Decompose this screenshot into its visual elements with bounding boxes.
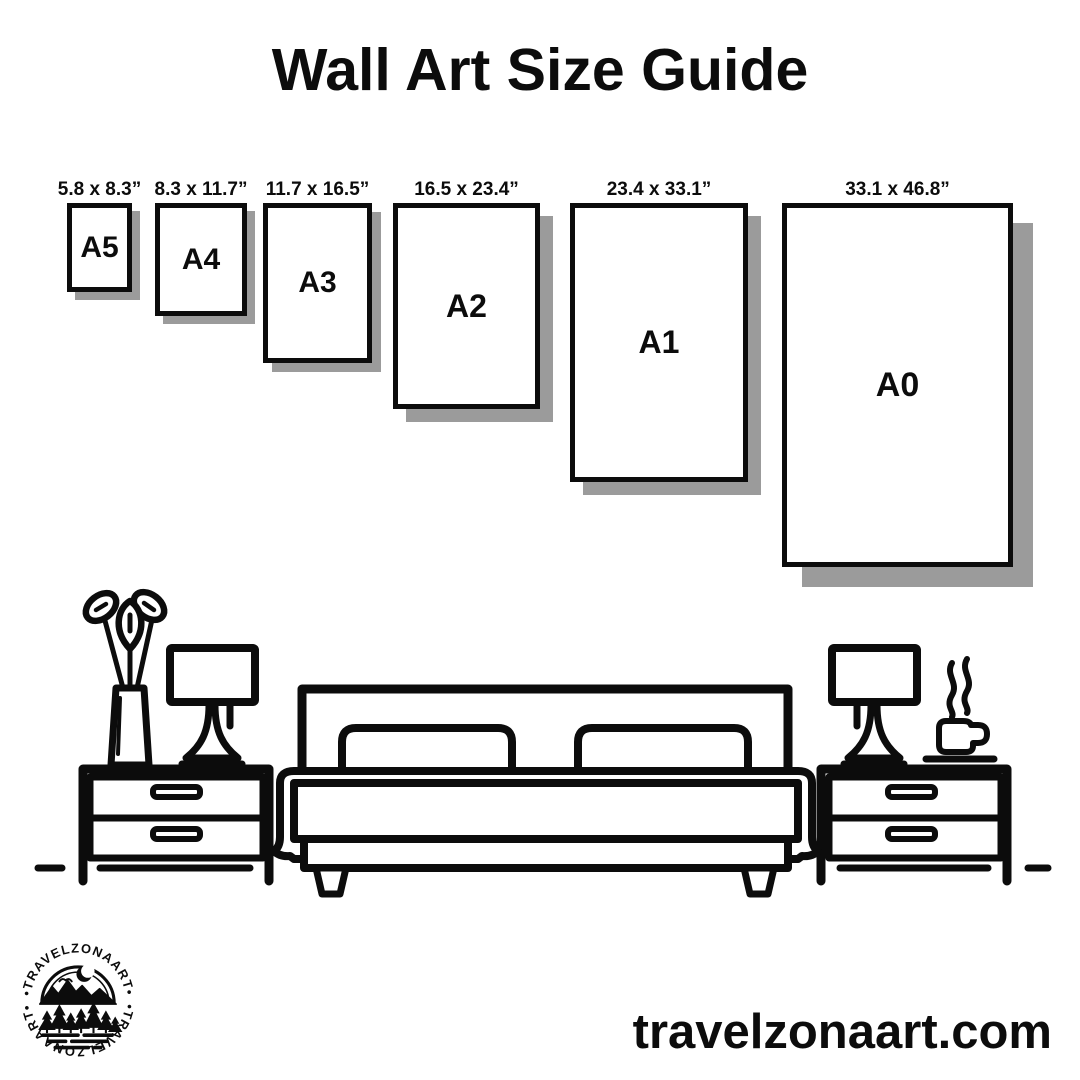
- page-title: Wall Art Size Guide: [0, 36, 1080, 104]
- website-url: travelzonaart.com: [633, 1004, 1052, 1060]
- bird-icon: [59, 979, 71, 981]
- table-lamp-right-icon: [832, 648, 917, 764]
- size-frame-a0: 33.1 x 46.8” A0: [782, 203, 1013, 567]
- wall-art-size-guide-poster: Wall Art Size Guide 5.8 x 8.3” A5 8.3 x …: [0, 0, 1080, 1080]
- bedroom-illustration: [0, 585, 1080, 915]
- size-dimensions-a4: 8.3 x 11.7”: [155, 179, 248, 201]
- brand-logo: •TRAVELZONAART• •TRAVELZONAART•: [16, 938, 140, 1062]
- nightstand-left-icon: [83, 769, 269, 881]
- pine-trees-icon: [38, 1002, 122, 1033]
- size-frame-a1: 23.4 x 33.1” A1: [570, 203, 748, 482]
- table-lamp-left-icon: [170, 648, 255, 764]
- size-letter-a5: A5: [80, 231, 118, 265]
- size-frame-a2: 16.5 x 23.4” A2: [393, 203, 540, 409]
- mattress-front: [294, 783, 798, 839]
- size-letter-a3: A3: [298, 266, 336, 300]
- size-letter-a2: A2: [446, 288, 487, 325]
- size-frame-a4: 8.3 x 11.7” A4: [155, 203, 247, 316]
- size-dimensions-a3: 11.7 x 16.5”: [266, 179, 370, 201]
- bed-leg-left: [316, 868, 346, 894]
- size-dimensions-a0: 33.1 x 46.8”: [845, 179, 950, 201]
- plant-vase-icon: [81, 586, 170, 765]
- nightstand-right-icon: [821, 769, 1007, 881]
- size-dimensions-a2: 16.5 x 23.4”: [414, 179, 519, 201]
- bed-base: [304, 839, 788, 868]
- steam-icon: [949, 659, 969, 717]
- size-dimensions-a1: 23.4 x 33.1”: [607, 179, 712, 201]
- size-letter-a0: A0: [876, 366, 919, 405]
- size-letter-a4: A4: [182, 243, 220, 277]
- logo-mountain-scene: [38, 964, 122, 1047]
- size-frame-a5: 5.8 x 8.3” A5: [67, 203, 132, 292]
- size-letter-a1: A1: [639, 324, 680, 361]
- size-dimensions-a5: 5.8 x 8.3”: [58, 179, 141, 201]
- coffee-cup-icon: [926, 659, 994, 759]
- mountains-icon: [40, 980, 116, 1004]
- double-bed-icon: [274, 689, 818, 894]
- size-frame-a3: 11.7 x 16.5” A3: [263, 203, 372, 363]
- bed-leg-right: [744, 868, 774, 894]
